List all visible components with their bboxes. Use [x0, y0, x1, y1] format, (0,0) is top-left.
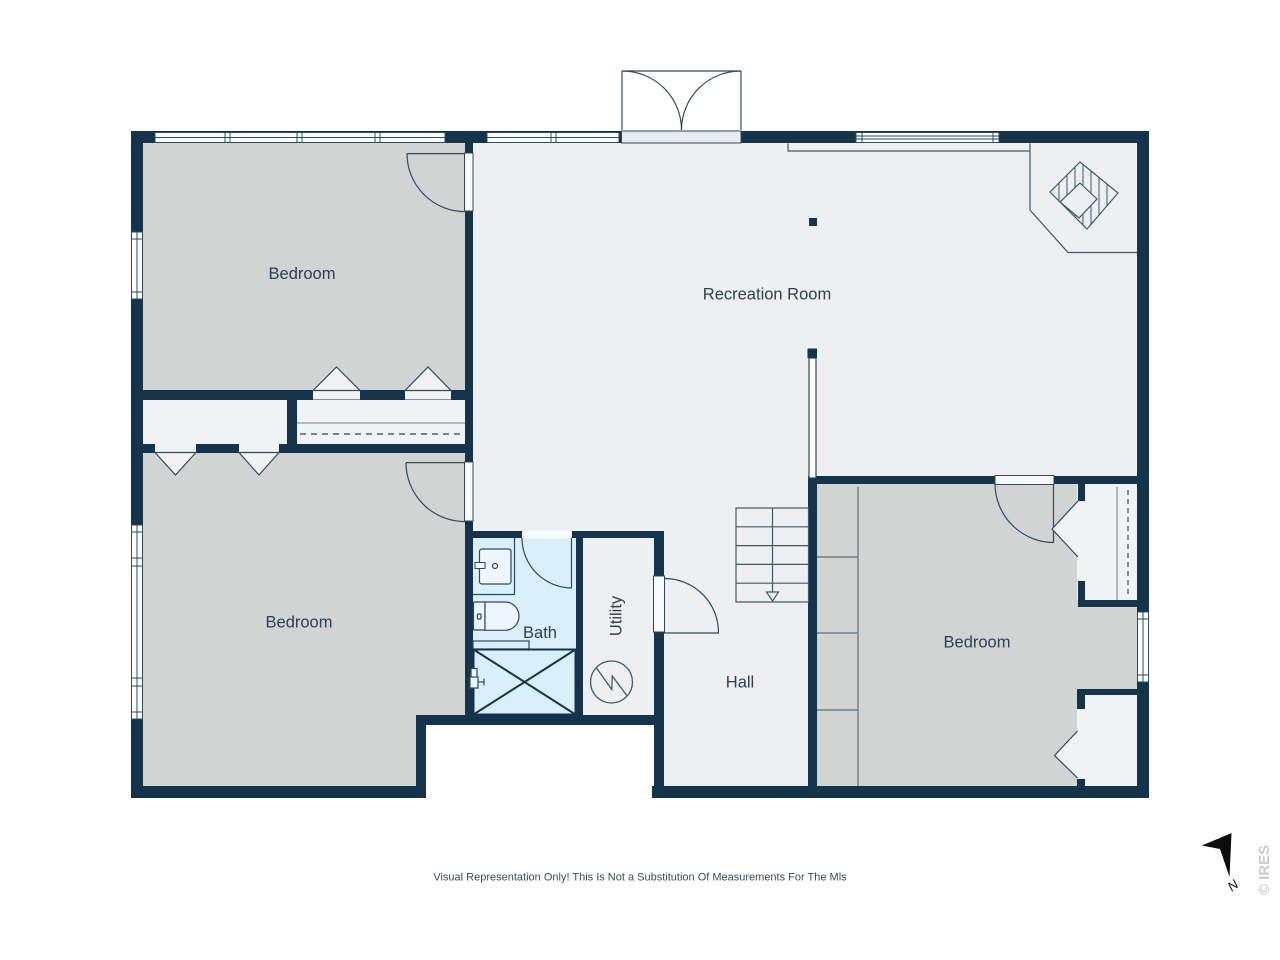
svg-text:Utility: Utility [608, 595, 626, 636]
svg-text:Bedroom: Bedroom [944, 634, 1011, 652]
svg-text:Bedroom: Bedroom [269, 265, 336, 283]
svg-text:© IRES: © IRES [1256, 845, 1273, 895]
svg-text:Visual Representation Only! Th: Visual Representation Only! This Is Not … [433, 872, 847, 884]
svg-text:Recreation Room: Recreation Room [703, 286, 831, 304]
svg-text:Bedroom: Bedroom [266, 614, 333, 632]
svg-text:Bath: Bath [523, 624, 557, 642]
svg-text:Hall: Hall [726, 674, 754, 692]
